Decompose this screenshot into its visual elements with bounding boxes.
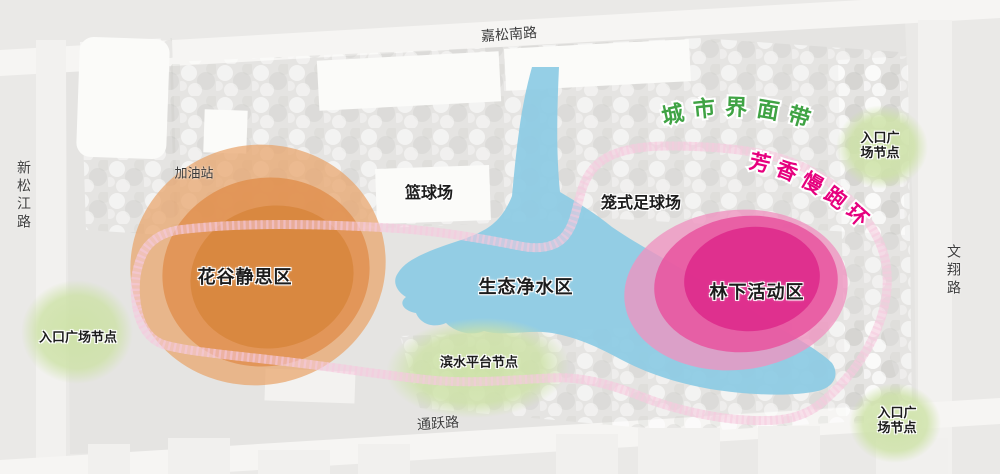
road-label-left: 新松江路 [14,160,34,232]
flower-valley-zone-label: 花谷静思区 [198,263,293,289]
entrance-node-top-right-label: 入口广 场节点 [860,130,899,160]
road-label-top: 嘉松南路 [480,22,537,46]
cage-football-field-label: 笼式足球场 [601,189,681,213]
entrance-node-bottom-right-line1: 入口广 [877,405,916,420]
entrance-node-bottom-right-label: 入口广 场节点 [877,405,916,435]
waterfront-node-label: 滨水平台节点 [440,355,518,370]
forest-activity-zone-label: 林下活动区 [710,278,805,304]
entrance-node-bottom-right-line2: 场节点 [877,420,916,435]
road-left-band [36,40,66,474]
entrance-node-top-right-line2: 场节点 [860,145,899,160]
basketball-court-label: 篮球场 [405,179,453,203]
entrance-node-left-label: 入口广场节点 [39,330,117,345]
road-label-bottom: 通跃路 [416,412,459,435]
entrance-node-top-right-line1: 入口广 [860,130,899,145]
gas-station-label: 加油站 [174,163,213,182]
site-plan-map: 城市界面带 芳香慢跑环 嘉松南路 新松江路 文翔路 通跃路 加油站 篮球场 笼式… [0,0,1000,474]
map-graphics: 城市界面带 芳香慢跑环 [0,0,1000,474]
eco-water-zone-label: 生态净水区 [479,273,574,299]
road-label-right: 文翔路 [944,244,964,298]
